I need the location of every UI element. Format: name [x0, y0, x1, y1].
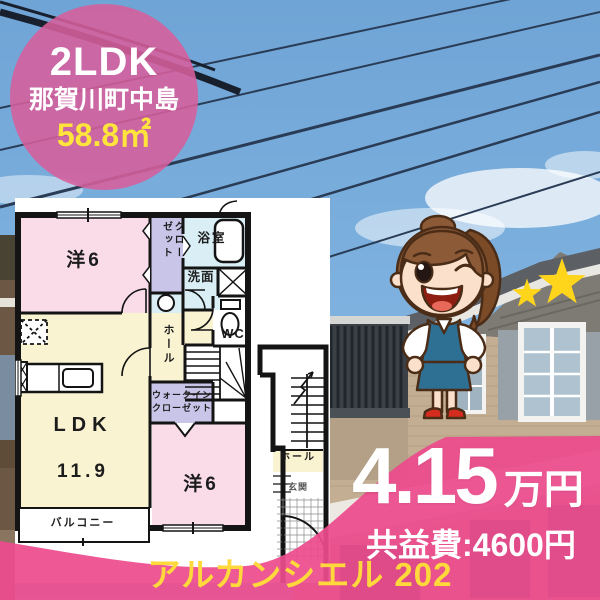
- star-icon: [538, 258, 586, 303]
- room-label-stair-hall: ホール: [273, 452, 323, 464]
- property-name: アルカンシエル 202: [0, 548, 600, 596]
- room-label-bedroom2: 洋6: [160, 474, 242, 496]
- room-label-wic: ウォークイン クローゼット: [151, 389, 213, 415]
- price-block: 4.15 万円: [352, 434, 584, 518]
- floor-plan: 洋6 クローゼット 浴室 洗面 WC ホール LDK 11.9 ウォークイン ク…: [15, 198, 330, 583]
- ldk-size: 11.9: [57, 461, 109, 482]
- ldk-hatch: [21, 320, 47, 344]
- room-label-hall: ホール: [158, 324, 174, 382]
- floor-area: 58.8㎡: [57, 116, 151, 154]
- star-icon: [512, 279, 541, 307]
- mascot-character: [382, 212, 512, 428]
- room-label-bath: 浴室: [181, 231, 243, 245]
- left-house-strip: [0, 235, 15, 600]
- washer-circle: [158, 295, 174, 311]
- room-label-washroom: 洗面: [169, 270, 233, 284]
- rent-amount: 4.15: [352, 434, 496, 518]
- room-label-balcony: バルコニー: [33, 517, 133, 530]
- room-label-wc: WC: [211, 327, 255, 342]
- ldk-name: LDK: [53, 414, 112, 436]
- room-label-entrance: 玄関: [277, 482, 319, 492]
- kitchen-counter: [22, 364, 102, 392]
- layout-type: 2LDK: [50, 39, 158, 85]
- location: 那賀川町中島: [29, 85, 179, 116]
- rent-unit: 万円: [504, 457, 584, 515]
- room-label-bedroom1: 洋6: [43, 250, 125, 272]
- room-label-ldk: LDK 11.9: [33, 414, 133, 483]
- stars-decoration: [510, 250, 596, 320]
- room-label-closet: クローゼット: [153, 221, 183, 266]
- listing-ad: 洋6 クローゼット 浴室 洗面 WC ホール LDK 11.9 ウォークイン ク…: [0, 0, 600, 600]
- info-badge: 2LDK 那賀川町中島 58.8㎡: [10, 4, 198, 190]
